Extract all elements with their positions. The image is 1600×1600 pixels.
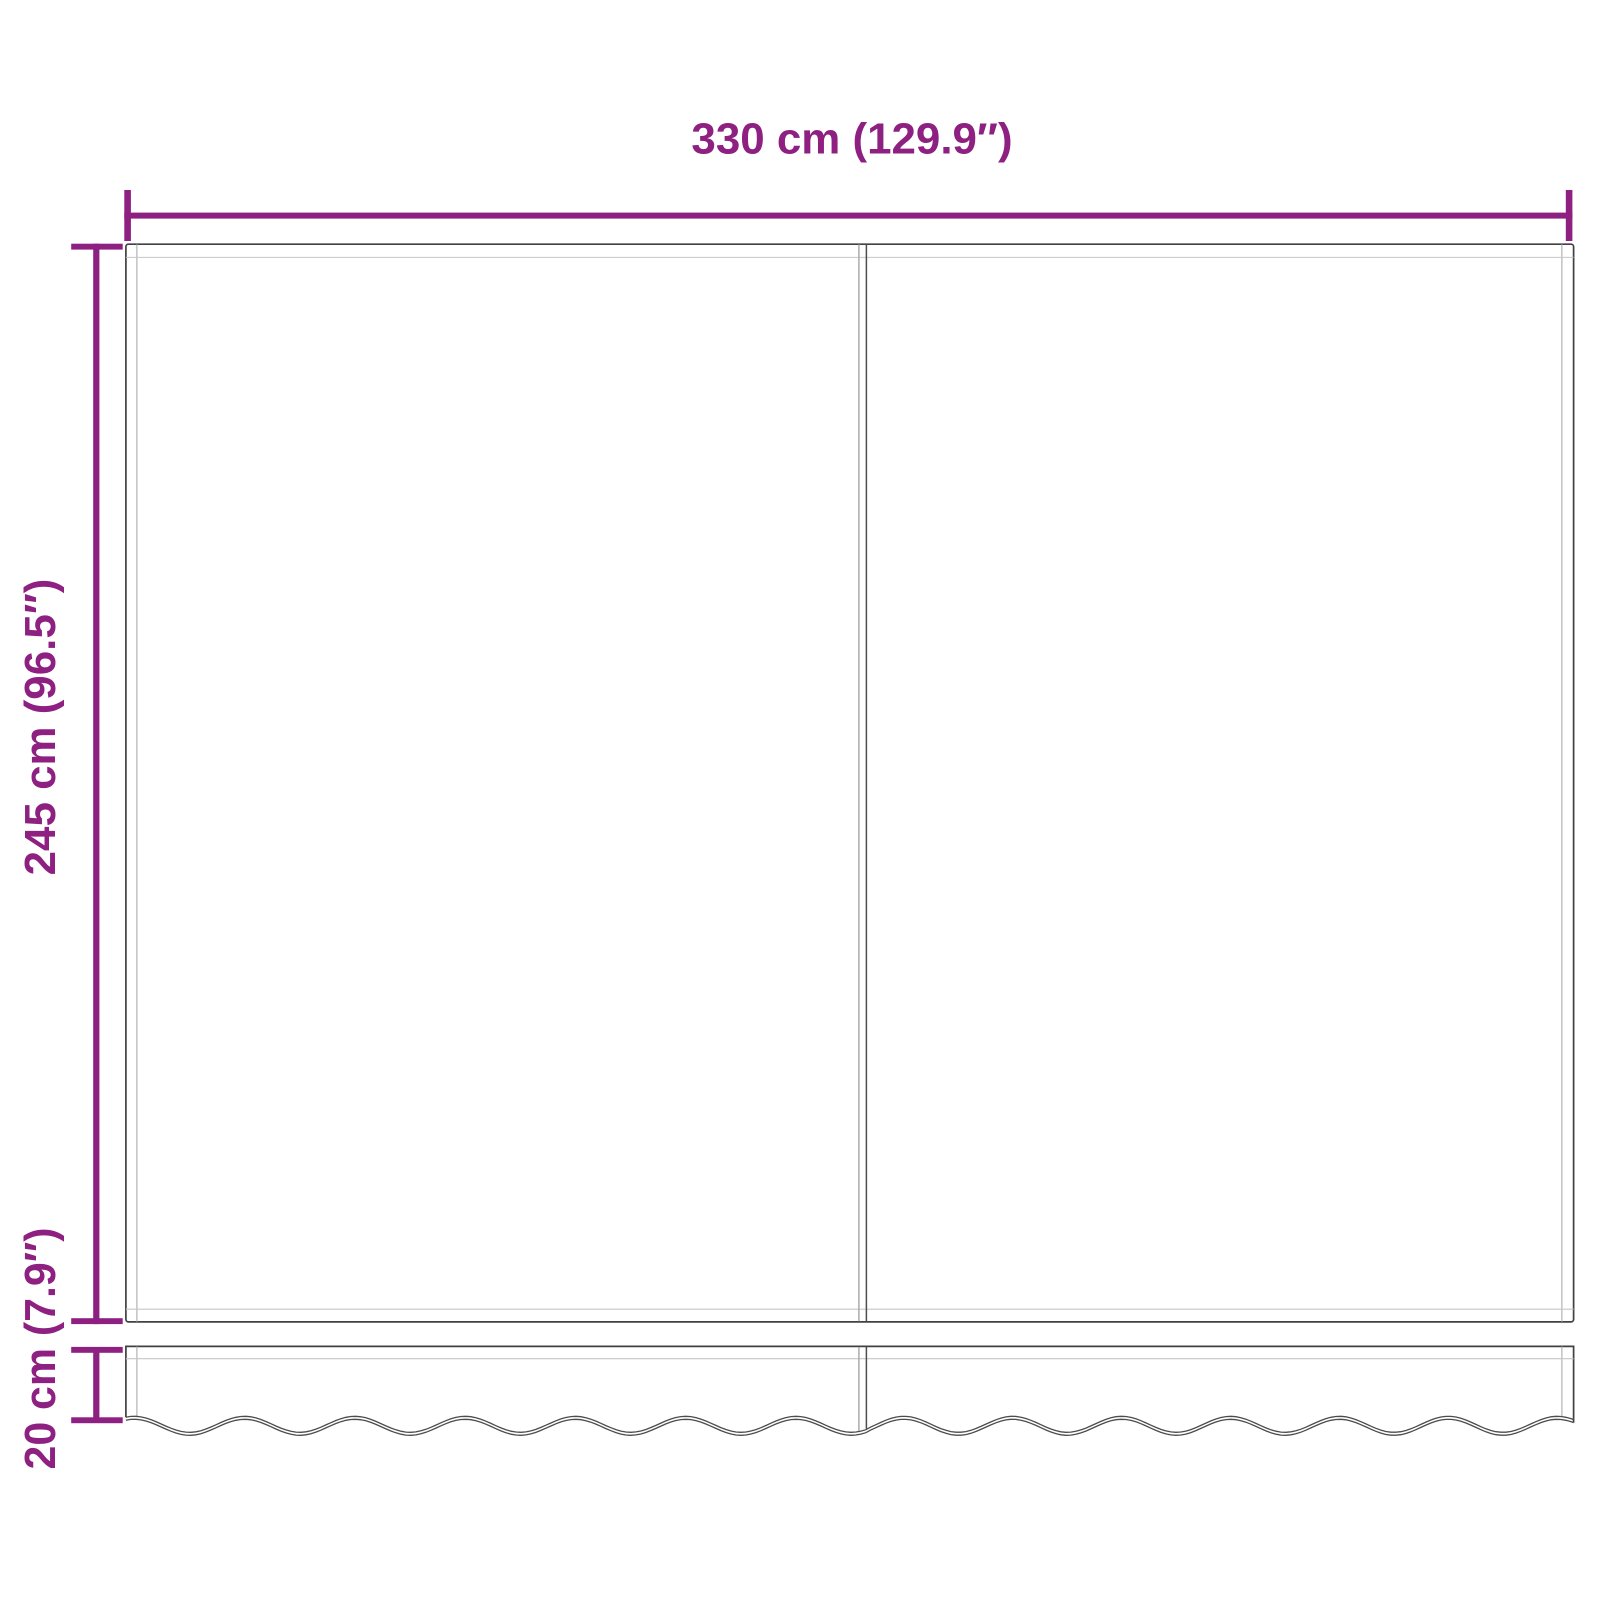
svg-text:245 cm (96.5″): 245 cm (96.5″)	[16, 579, 65, 876]
svg-text:330 cm (129.9″): 330 cm (129.9″)	[691, 115, 1012, 164]
svg-text:20 cm (7.9″): 20 cm (7.9″)	[16, 1228, 65, 1470]
